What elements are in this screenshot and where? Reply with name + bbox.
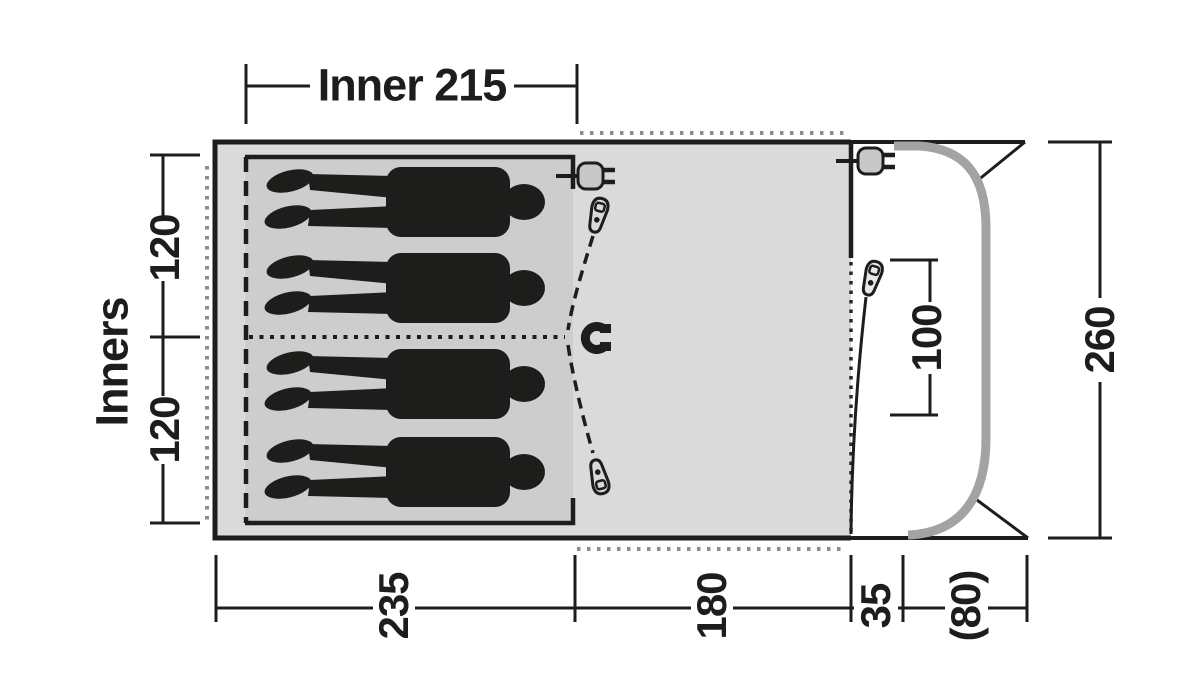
dim-label-door-height: 100: [906, 304, 948, 371]
guy-line-top: [977, 142, 1025, 181]
dim-label-depth-front: 35: [855, 584, 897, 629]
dim-label-depth-canopy: (80): [945, 571, 987, 642]
front-wall: [851, 142, 866, 534]
tent-floorplan-diagram: Inner 215 Inners 120 120 235 180 35 (80)…: [0, 0, 1200, 697]
floorplan-drawing: [0, 0, 1200, 697]
guy-line-bottom: [977, 500, 1028, 538]
front-door-edge: [851, 297, 866, 534]
zipper-pull-icon: [859, 259, 884, 297]
dim-label-total-width: 260: [1079, 306, 1121, 373]
dim-depths: [216, 555, 1027, 622]
dim-bedrooms: [150, 155, 200, 523]
dim-label-inners: Inners: [90, 297, 135, 426]
dim-label-bedroom-bottom: 120: [144, 396, 186, 463]
dim-label-depth-living: 180: [691, 572, 733, 639]
dim-label-depth-sleeping: 235: [373, 572, 415, 639]
dim-label-bedroom-top: 120: [144, 214, 186, 281]
dim-label-inner-width: Inner 215: [318, 63, 507, 108]
